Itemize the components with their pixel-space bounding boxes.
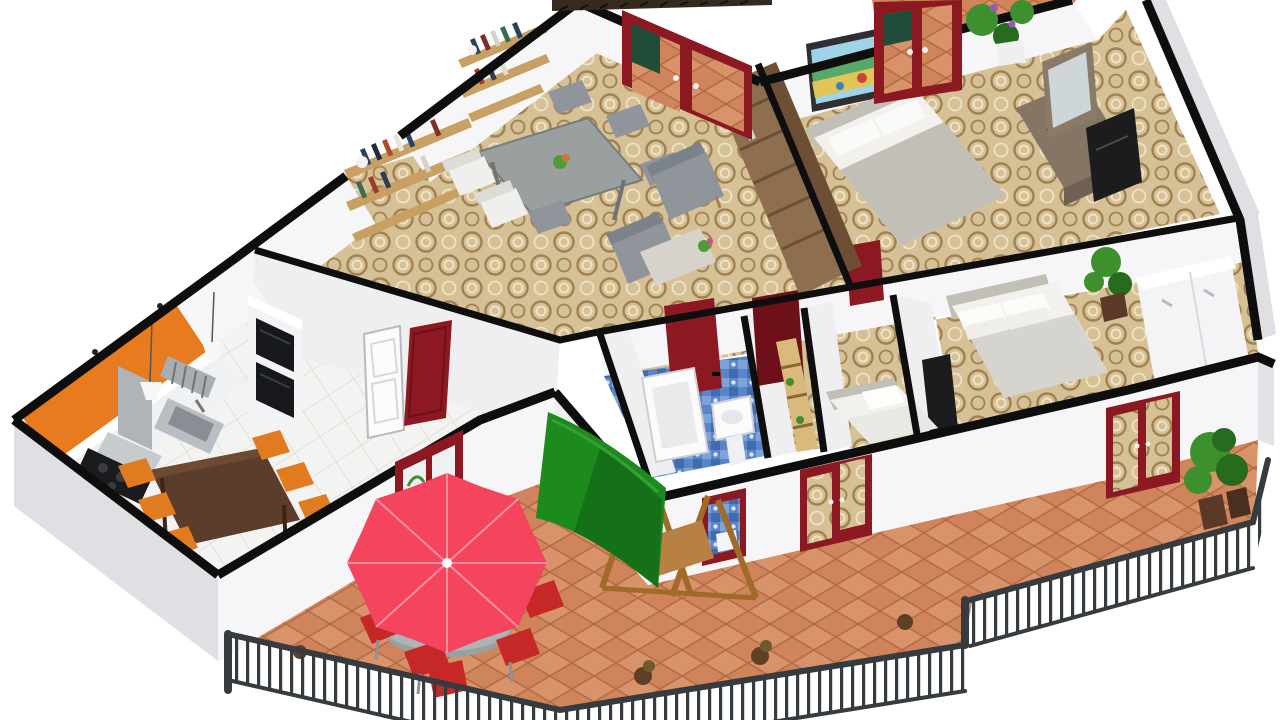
hall-red-door [404, 320, 452, 426]
floorplan-render [0, 0, 1280, 720]
terrace-french-door-1 [800, 454, 872, 552]
terrace-french-door-2 [1106, 391, 1180, 499]
east-face-sliver [1258, 357, 1274, 446]
floorplan-canvas [0, 0, 1280, 720]
oven-column [248, 295, 302, 442]
balcony-french-door [874, 0, 962, 104]
white-door [364, 326, 404, 438]
red-parasol [347, 473, 547, 653]
roof-shingles [552, 0, 772, 11]
